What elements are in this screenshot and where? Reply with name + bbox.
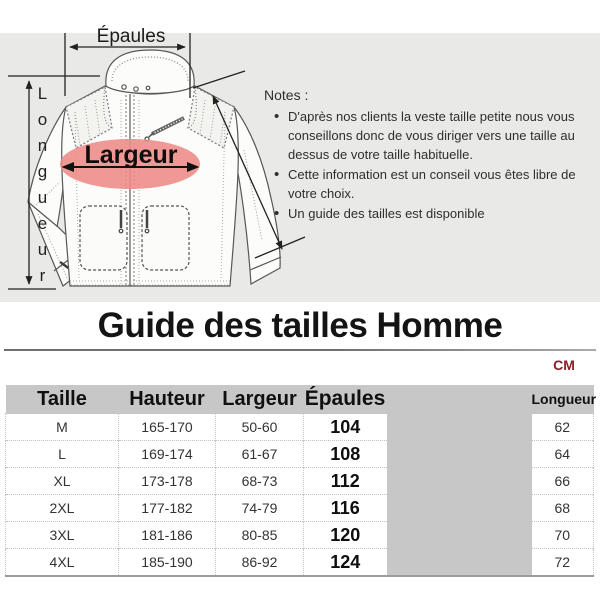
- size-row-4xl: 4XL 185-190 86-92 124 72: [6, 549, 594, 577]
- note-item: Un guide des tailles est disponible: [264, 204, 600, 223]
- cell-taille: M: [6, 414, 119, 441]
- size-table: Taille Hauteur Largeur Épaules Longueur …: [5, 385, 594, 577]
- notes-heading: Notes :: [264, 87, 600, 103]
- notes-list: D'après nos clients la veste taille peti…: [264, 107, 600, 223]
- col-header-largeur: Largeur: [216, 385, 304, 414]
- note-item: Cette information est un conseil vous êt…: [264, 165, 600, 203]
- cell-epaules: 108: [304, 441, 387, 468]
- unit-label: CM: [540, 357, 588, 373]
- length-label: Longueur: [32, 84, 52, 294]
- cell-taille: L: [6, 441, 119, 468]
- cell-largeur: 61-67: [216, 441, 304, 468]
- col-header-hauteur: Hauteur: [119, 385, 216, 414]
- cell-longueur: 66: [532, 468, 594, 495]
- size-row-xl: XL 173-178 68-73 112 66: [6, 468, 594, 495]
- cell-taille: 4XL: [6, 549, 119, 577]
- size-row-3xl: 3XL 181-186 80-85 120 70: [6, 522, 594, 549]
- size-row-l: L 169-174 61-67 108 64: [6, 441, 594, 468]
- cell-largeur: 50-60: [216, 414, 304, 441]
- header-gap: [387, 385, 532, 414]
- cell-longueur: 62: [532, 414, 594, 441]
- cell-taille: 3XL: [6, 522, 119, 549]
- shoulder-label: Épaules: [88, 26, 174, 48]
- cell-longueur: 70: [532, 522, 594, 549]
- size-row-2xl: 2XL 177-182 74-79 116 68: [6, 495, 594, 522]
- cell-epaules: 116: [304, 495, 387, 522]
- cell-gap: [387, 468, 532, 495]
- cell-epaules: 104: [304, 414, 387, 441]
- notes-block: Notes : D'après nos clients la veste tai…: [264, 87, 600, 224]
- cell-epaules: 120: [304, 522, 387, 549]
- cell-gap: [387, 495, 532, 522]
- cell-longueur: 68: [532, 495, 594, 522]
- cell-epaules: 112: [304, 468, 387, 495]
- cell-hauteur: 177-182: [119, 495, 216, 522]
- col-header-taille: Taille: [6, 385, 119, 414]
- cell-gap: [387, 549, 532, 577]
- cell-largeur: 86-92: [216, 549, 304, 577]
- cell-gap: [387, 441, 532, 468]
- cell-taille: XL: [6, 468, 119, 495]
- cell-gap: [387, 522, 532, 549]
- cell-hauteur: 185-190: [119, 549, 216, 577]
- cell-largeur: 68-73: [216, 468, 304, 495]
- cell-longueur: 64: [532, 441, 594, 468]
- cell-hauteur: 173-178: [119, 468, 216, 495]
- cell-longueur: 72: [532, 549, 594, 577]
- size-row-m: M 165-170 50-60 104 62: [6, 414, 594, 441]
- cell-epaules: 124: [304, 549, 387, 577]
- page-title: Guide des tailles Homme: [0, 306, 600, 346]
- note-item: D'après nos clients la veste taille peti…: [264, 107, 600, 164]
- cell-hauteur: 165-170: [119, 414, 216, 441]
- title-divider: [4, 349, 596, 351]
- col-header-longueur: Longueur: [532, 385, 594, 414]
- cell-hauteur: 181-186: [119, 522, 216, 549]
- col-header-epaules: Épaules: [304, 385, 387, 414]
- width-label: Largeur: [68, 141, 194, 170]
- cell-largeur: 80-85: [216, 522, 304, 549]
- cell-hauteur: 169-174: [119, 441, 216, 468]
- size-guide-page: Épaules Longueur Largeur Notes : D'après…: [0, 0, 600, 600]
- size-table-header-row: Taille Hauteur Largeur Épaules Longueur: [6, 385, 594, 414]
- cell-gap: [387, 414, 532, 441]
- cell-taille: 2XL: [6, 495, 119, 522]
- cell-largeur: 74-79: [216, 495, 304, 522]
